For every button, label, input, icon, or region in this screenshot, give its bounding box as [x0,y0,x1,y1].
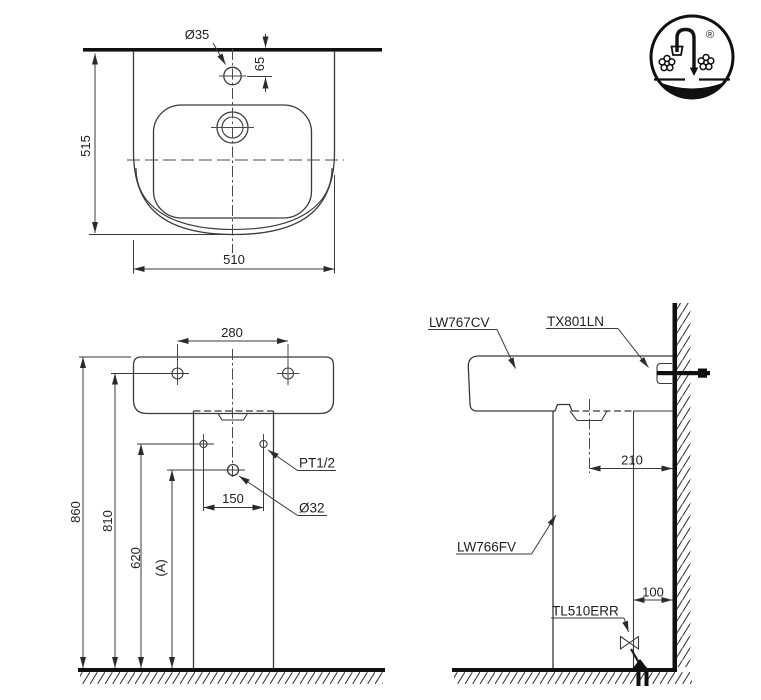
top-view: Ø35 65 515 510 [78,27,382,274]
registered-trademark-symbol: ® [706,29,714,41]
dim-515 [89,54,242,235]
label-pedestal-model: LW766FV [457,540,516,555]
dim-label-mount-hole-height: 810 [100,510,115,532]
floor-hatch-side [454,672,692,684]
trap-recess [570,411,607,421]
logo-gooseneck-spout [677,30,694,69]
dim-label-total-height: 860 [68,501,83,523]
dim-label-width: 510 [223,252,245,267]
floor-line-side [452,668,677,672]
dim-label-supply-spacing: 150 [222,491,244,506]
dim-label-hole-spacing: 280 [221,325,243,340]
dim-label-hole-to-wall: 65 [252,57,267,71]
label-supply-thread: PT1/2 [299,456,335,471]
side-view: LW767CV TX801LN LW766FV TL510ERR 210 100 [428,303,710,686]
label-drain-valve-model: TL510ERR [552,604,619,619]
faucet-hole-leader [213,43,226,65]
basin-front-outline [134,357,334,414]
dim-label-supply-height: 620 [128,547,143,569]
technical-drawing-canvas: Ø35 65 515 510 [0,0,761,700]
drain-valve-leader [551,618,629,632]
logo-basin-fill [660,83,724,98]
wall-line [673,303,678,670]
label-faucet-model: TX801LN [547,314,604,329]
dim-label-outlet-to-wall: 100 [642,585,664,600]
wall-hatch [677,303,691,667]
dim-label-faucet-hole-diameter: Ø35 [185,27,210,42]
lavatory-leader [428,330,516,369]
dim-label-depth: 515 [78,135,93,157]
basin-side-profile [468,356,672,411]
front-view: 280 860 810 620 (A) 150 PT1/2 Ø32 [68,325,385,684]
floor-line-front [78,668,385,672]
logo-spout-arrow [690,68,698,77]
faucet-leader [546,329,649,368]
pedestal-side [553,411,634,668]
floor-hatch-front [80,672,383,684]
dim-label-drain-height: (A) [153,559,168,576]
label-drain-diameter: Ø32 [299,501,325,516]
brand-logo: ® [651,16,733,98]
logo-handle-right [698,55,714,70]
pedestal-front [194,411,274,668]
dim-label-drain-to-wall: 210 [621,453,643,468]
label-lavatory-model: LW767CV [429,315,490,330]
logo-handle-left [659,56,675,71]
